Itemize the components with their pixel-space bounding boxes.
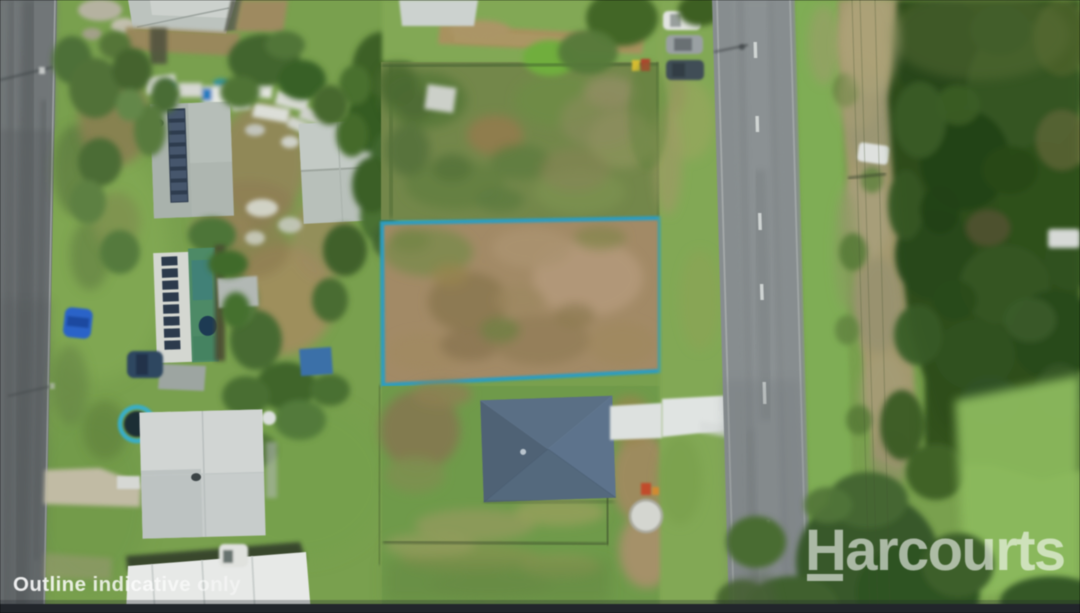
- svg-text:Outline indicative only: Outline indicative only: [13, 573, 241, 596]
- svg-text:Harcourts: Harcourts: [805, 518, 1065, 583]
